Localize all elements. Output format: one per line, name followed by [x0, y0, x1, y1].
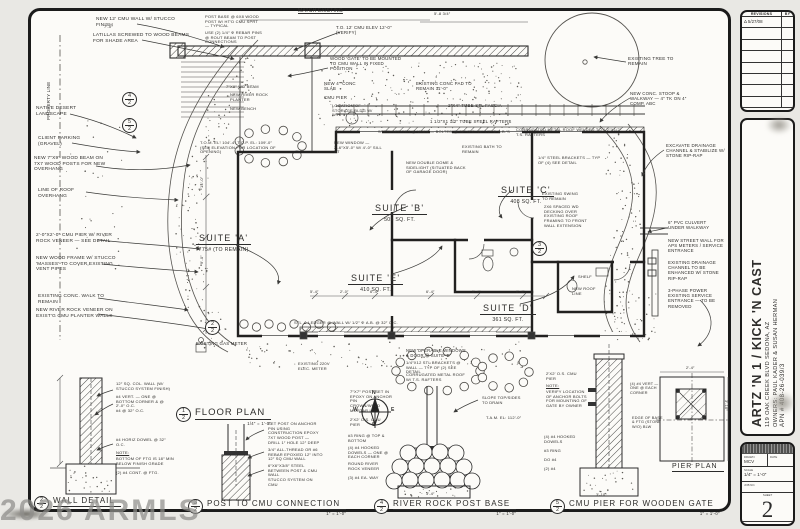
annotation-label: EXISTING CONC PAD TO REMAIN 11′-0″ [416, 81, 478, 91]
detail-scale: 1/4″ = 1′-0″ [195, 421, 271, 426]
date-label: DATE [770, 455, 793, 459]
detail-bubble: 22 [205, 320, 220, 335]
detail-title: PIER PLAN [672, 463, 724, 472]
detail-bubble: 12 [176, 407, 191, 422]
detail-bubble: 42 [122, 92, 137, 107]
project-address: 119 OAK CREEK BLVD SEDONA, AZ [765, 127, 771, 427]
annotation-label: NEW WINDOW — 2′-6″x5′-0″ W/ 4′-0″ SILL H… [334, 141, 386, 155]
suite-name: SUITE 'D' [480, 303, 536, 315]
drawn-value: MCV [744, 459, 754, 464]
compass-letter: W [353, 408, 358, 414]
project-title: ARTZ 'N 1 / KICK 'N CAST [749, 127, 763, 427]
job-label: JOB NO. [744, 483, 793, 487]
armls-watermark: 2026 ARMLS [0, 494, 201, 528]
revision-row [742, 63, 793, 74]
annotation-label: (4) #4 HOOKED DOWELS [544, 435, 584, 444]
compass-letter: N [372, 391, 376, 397]
annotation-label: CORRUGATED METAL ROOF W/ T.S. RAFTERS [406, 373, 466, 382]
annotation-label: T.A.M. EL: 112′-0″ [486, 416, 522, 421]
annotation-label: 6′-4″ [426, 290, 444, 294]
revisions-title: REVISIONS [742, 12, 782, 16]
annotation-label: 1 1/2″x1 1/2″ TUBE STEEL RAFTERS [430, 119, 522, 124]
annotation-label: NATIVE DESERT LANDSCAPE [36, 106, 82, 117]
project-apn: APN # 408-26-039/3 [780, 127, 786, 427]
annotation-label: 3′-4″ [426, 492, 446, 496]
compass-letter: E [391, 408, 395, 414]
annotation-label: POST BASE @ 6x8 WOOD POST W/ HT′D CMU SP… [205, 15, 263, 29]
annotation-label: EXISTING 220V ELEC. METER [298, 362, 340, 371]
annotation-label: NEW BENCH [230, 107, 262, 112]
designer-scribble [742, 444, 793, 454]
annotation-label: EDGE OF BASE & FTG (STONE W/O) BLW [632, 416, 666, 429]
annotation-label: 3′-10″ [724, 400, 728, 422]
revision-row [742, 85, 793, 96]
suite-name: SUITE 'E' [348, 273, 403, 285]
annotation-label: 6′-4″ [516, 290, 534, 294]
detail-title: 12FLOOR PLAN1/4″ = 1′-0″ [176, 407, 271, 426]
annotation-label: ROUND RIVER ROCK VENEER [348, 462, 390, 471]
plan-callout: 52 [122, 118, 137, 133]
annotation-label: SHELF [578, 275, 598, 280]
annotation-label: 3′-10″ [596, 493, 618, 497]
annotation-label: 5′-8 3/4″ [434, 12, 464, 17]
annotation-label: STEEL LEDGER @ WALL — BOLTED @ 32″ O.C. … [378, 130, 513, 135]
annotation-label: BOTTOM OF FTG IS 18″ MIN BELOW FINISH GR… [116, 457, 174, 466]
annotation-label: USE (2) 1/4″ φ REBAR PINS @ ROUT BEAM TO… [205, 31, 265, 45]
annotation-label: DO #4 [544, 458, 568, 463]
detail-title-text: CMU PIER FOR WOODEN GATE [569, 499, 720, 510]
plan-callout: 42 [122, 92, 137, 107]
detail-bubble: 42 [374, 499, 389, 514]
annotation-label: (4) #4 HOOKED DOWELS — ONE @ EACH CORNER [348, 446, 396, 460]
annotation-label: 14′-0″ [200, 164, 205, 188]
annotation-label: VERIFY LOCATION OF ANCHOR BOLTS FOR MOUN… [546, 390, 588, 409]
suite-label: SUITE 'A'775# (TO REMAIN) [196, 228, 251, 253]
scan-smudge [768, 392, 796, 414]
project-block: ARTZ 'N 1 / KICK 'N CAST 119 OAK CREEK B… [740, 118, 795, 436]
annotation-label: NOTE: [546, 384, 568, 389]
annotation-label: EXISTING DRAINAGE CHANNEL TO BE ENHANCED… [668, 260, 728, 281]
annotation-label: 2x6 SPACED WD DECKING OVER EXISTING ROOF… [544, 205, 592, 229]
annotation-label: 7″x9″ WD BEAM [226, 85, 268, 90]
detail-scale: 1″ = 1′-0″ [569, 511, 720, 516]
detail-bubble: 32 [532, 241, 547, 256]
annotation-label: LINE OF ROOF OVERHANG [38, 188, 100, 199]
suite-name: SUITE 'B' [372, 203, 427, 215]
annotation-label: 3/4″ ALL-THREAD OR #6 REBAR EPOXIED 12″ … [268, 448, 324, 462]
compass-letter: S [372, 423, 376, 429]
annotation-label: 7x7 WOOD POST — DRILL 1″ HOLE 12″ DEEP [268, 436, 322, 445]
annotation-label: EXISTING TREE TO REMAIN [628, 56, 676, 67]
annotation-label: (4) #4 VERT — ONE @ EACH CORNER [630, 382, 664, 395]
sheet-number: 2 [742, 497, 793, 523]
plan-callout: 32 [532, 241, 547, 256]
suite-area: 410 SQ. FT. [348, 287, 403, 293]
annotation-label: NEW CONC. STOOP & WALKWAY — 4″ TK ON 4″ … [630, 91, 688, 107]
annotation-label: #3 RING [544, 449, 574, 454]
annotation-label: MATCH EXISTING [298, 9, 358, 15]
suite-label: SUITE 'E'410 SQ. FT. [348, 268, 403, 293]
detail-title-text: PIER PLAN [672, 463, 724, 472]
plan-callout: 22 [205, 320, 220, 335]
revision-row [742, 40, 793, 51]
suite-label: SUITE 'D'361 SQ. FT. [480, 298, 536, 323]
scale-value: 1/4″ = 1′-0″ [744, 472, 766, 477]
detail-title-text: RIVER ROCK POST BASE [393, 499, 516, 510]
suite-name: SUITE 'C' [498, 185, 554, 197]
suite-area: 361 SQ. FT. [480, 317, 536, 323]
annotation-label: (3) #4 EA. WAY [348, 476, 386, 481]
annotation-label: 5′-4″ [472, 290, 490, 294]
detail-title-text: POST TO CMU CONNECTION [207, 499, 346, 510]
annotation-label: 6″ PVC CULVERT UNDER WALKWAY [668, 220, 724, 230]
annotation-label: EXCAVATE DRAINAGE CHANNEL & STABILIZE W/… [666, 143, 728, 159]
annotation-label: CMU PIER [324, 95, 356, 100]
detail-title-text: FLOOR PLAN [195, 407, 271, 420]
annotation-label: NEW OPERABLE WINDOWS & DOOR @ SUITE ′D′ [406, 349, 470, 359]
suite-area: 505 SQ. FT. [372, 217, 427, 223]
revisions-block: REVISIONS BY Δ 5/27/08 [740, 10, 795, 112]
annotation-label: EXISTING GAS METER [196, 341, 258, 346]
annotation-label: (2) #4 [544, 467, 568, 472]
annotation-label: 2′x2′ O.S. CMU PIER [350, 418, 388, 427]
annotation-label: 2′-0″x2′-0″ CMU PIER W/ RIVER ROCK VENEE… [36, 233, 118, 244]
annotation-label: EXISTING BATH TO REMAIN [462, 145, 502, 154]
annotation-label: T.O.M. EL: 104′-4″ T.O.P. EL: 109′-0″ (S… [200, 141, 280, 155]
detail-title: 52CMU PIER FOR WOODEN GATE1″ = 1′-0″ [550, 499, 720, 516]
revision-row [742, 74, 793, 85]
revision-row [742, 28, 793, 39]
annotation-label: NEW ROOF LINE [572, 287, 602, 296]
annotation-label: EXISTING CONC. WALK TO REMAIN [38, 294, 120, 305]
annotation-label: CLIENT PARKING (GRAVEL) [38, 136, 82, 147]
annotation-label: #4 @ 32″ O.C. [116, 409, 154, 414]
annotation-label: 2′-4″ [686, 366, 706, 370]
annotation-label: NEW RIVER ROCK VENEER ON EXIST′G CMU PLA… [36, 308, 120, 319]
annotation-label: 2′x2′ O.S. CMU PIER [546, 372, 586, 381]
suite-area: 775# (TO REMAIN) [196, 247, 251, 253]
suite-name: SUITE 'A' [196, 233, 251, 245]
suite-area: 408 SQ. FT. [498, 199, 554, 205]
annotation-label: STUCCO SYSTEM ON CMU [268, 478, 320, 487]
detail-title: 42RIVER ROCK POST BASE1″ = 1′-0″ [374, 499, 516, 516]
annotation-label: 12″ SQ. COL. WALL (W/ STUCCO SYSTEM FINI… [116, 382, 174, 391]
detail-bubble: 52 [550, 499, 565, 514]
annotation-label: NEW RIVER ROCK PLANTER [230, 93, 274, 102]
detail-bubble: 52 [122, 118, 137, 133]
annotation-label: #3 RING @ TOP & BOTTOM [348, 434, 392, 443]
annotation-label: 3-PHASE POWER EXISTING SERVICE ENTRANCE … [668, 288, 724, 309]
annotation-label: NEW 7″x9″ WOOD BEAM ON 7x7 WOOD POSTS FO… [34, 156, 112, 173]
annotation-label: LATILLAS SCREWED TO WOOD BEAMS FOR SHADE… [93, 33, 191, 44]
revisions-by-label: BY [782, 12, 793, 16]
project-owners: OWNERS: PAUL KADER & SUSAN HERMAN [772, 127, 778, 427]
annotation-label: NOTE: [116, 451, 138, 456]
annotation-label: 1/4″ STEEL BRACKETS — TYP OF (4) SEE DET… [538, 156, 606, 165]
annotation-label: #4 HORIZ DOWEL @ 32″ O.C. [116, 438, 172, 447]
detail-title: 32POST TO CMU CONNECTION1″ = 1′-0″ [188, 499, 346, 516]
annotation-label: NEW DOUBLE DOME & SIDELIGHT (SITUATED BA… [406, 161, 468, 175]
stamp-block: DRAWN MCV DATE SCALE 1/4″ = 1′-0″ JOB NO… [740, 442, 795, 526]
annotation-label: CORRUGATED METAL ROOF WELDED TO 1/2″x1/2… [516, 128, 626, 137]
annotation-label: STL ∠ LEDGER @ WALL W/ 1/2″ φ A.B. @ 32″… [294, 321, 426, 326]
suite-label: SUITE 'C'408 SQ. FT. [498, 180, 554, 205]
annotation-label: 7′-0″ [104, 25, 124, 30]
detail-scale: 1″ = 1′-0″ [207, 511, 346, 516]
scan-smudge [766, 116, 792, 134]
annotation-label: SLOPE TOP/SIDES TO DRAIN [482, 396, 522, 405]
annotation-label: 2″x4″ TUBE STL FASCIA [448, 103, 520, 108]
annotation-label: T.O. 12′ CMU ELEV 12′-0″ (VERIFY) [336, 25, 392, 35]
detail-scale: 1″ = 1′-0″ [393, 511, 516, 516]
suite-label: SUITE 'B'505 SQ. FT. [372, 198, 427, 223]
annotation-label: (2) #4 CONT. @ FTG. [116, 471, 166, 476]
annotation-layer: NEW 12′ CMU WALL W/ STUCCO FINISHLATILLA… [0, 0, 800, 529]
revision-row [742, 97, 793, 108]
revision-row: Δ 5/27/08 [742, 17, 793, 28]
annotation-label: NEW WOOD FRAME W/ STUCCO ′MASSES′ TO COV… [36, 256, 122, 273]
annotation-label: NEW 4″ CONC SLAB [324, 81, 366, 91]
annotation-label: LOCATION OF STORAGE BLDG W/ W.H. [332, 104, 382, 118]
revision-row [742, 51, 793, 62]
annotation-label: WOOD ′GATE′ TO BE MOUNTED TO CMU WALL IN… [330, 56, 404, 72]
annotation-label: 5′-4″ [310, 290, 328, 294]
annotation-label: NEW STREET WALL FOR APS METERS / SERVICE… [668, 238, 728, 254]
